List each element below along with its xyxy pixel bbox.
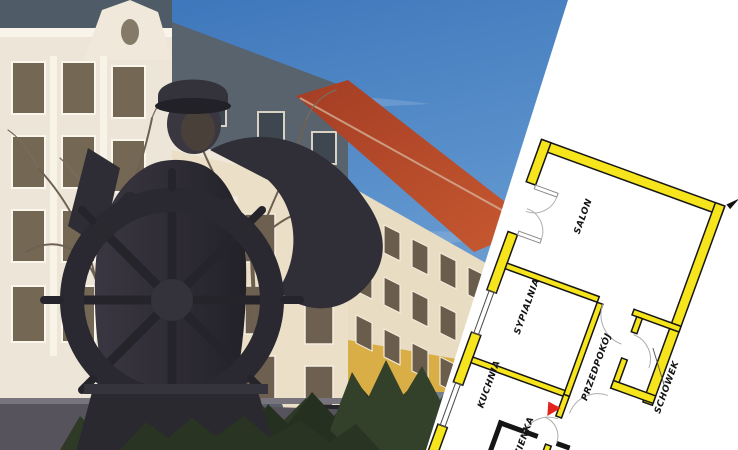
balcony-door — [517, 185, 558, 243]
north-arrow-icon — [725, 195, 738, 211]
listing-hero-image: SALON SYPIALNIA KUCHNIA PRZEDPOKÓJ SCHOW… — [0, 0, 738, 450]
statue-hand-right — [232, 218, 254, 240]
statue-face — [181, 109, 215, 151]
statue-hand-left — [93, 219, 115, 241]
